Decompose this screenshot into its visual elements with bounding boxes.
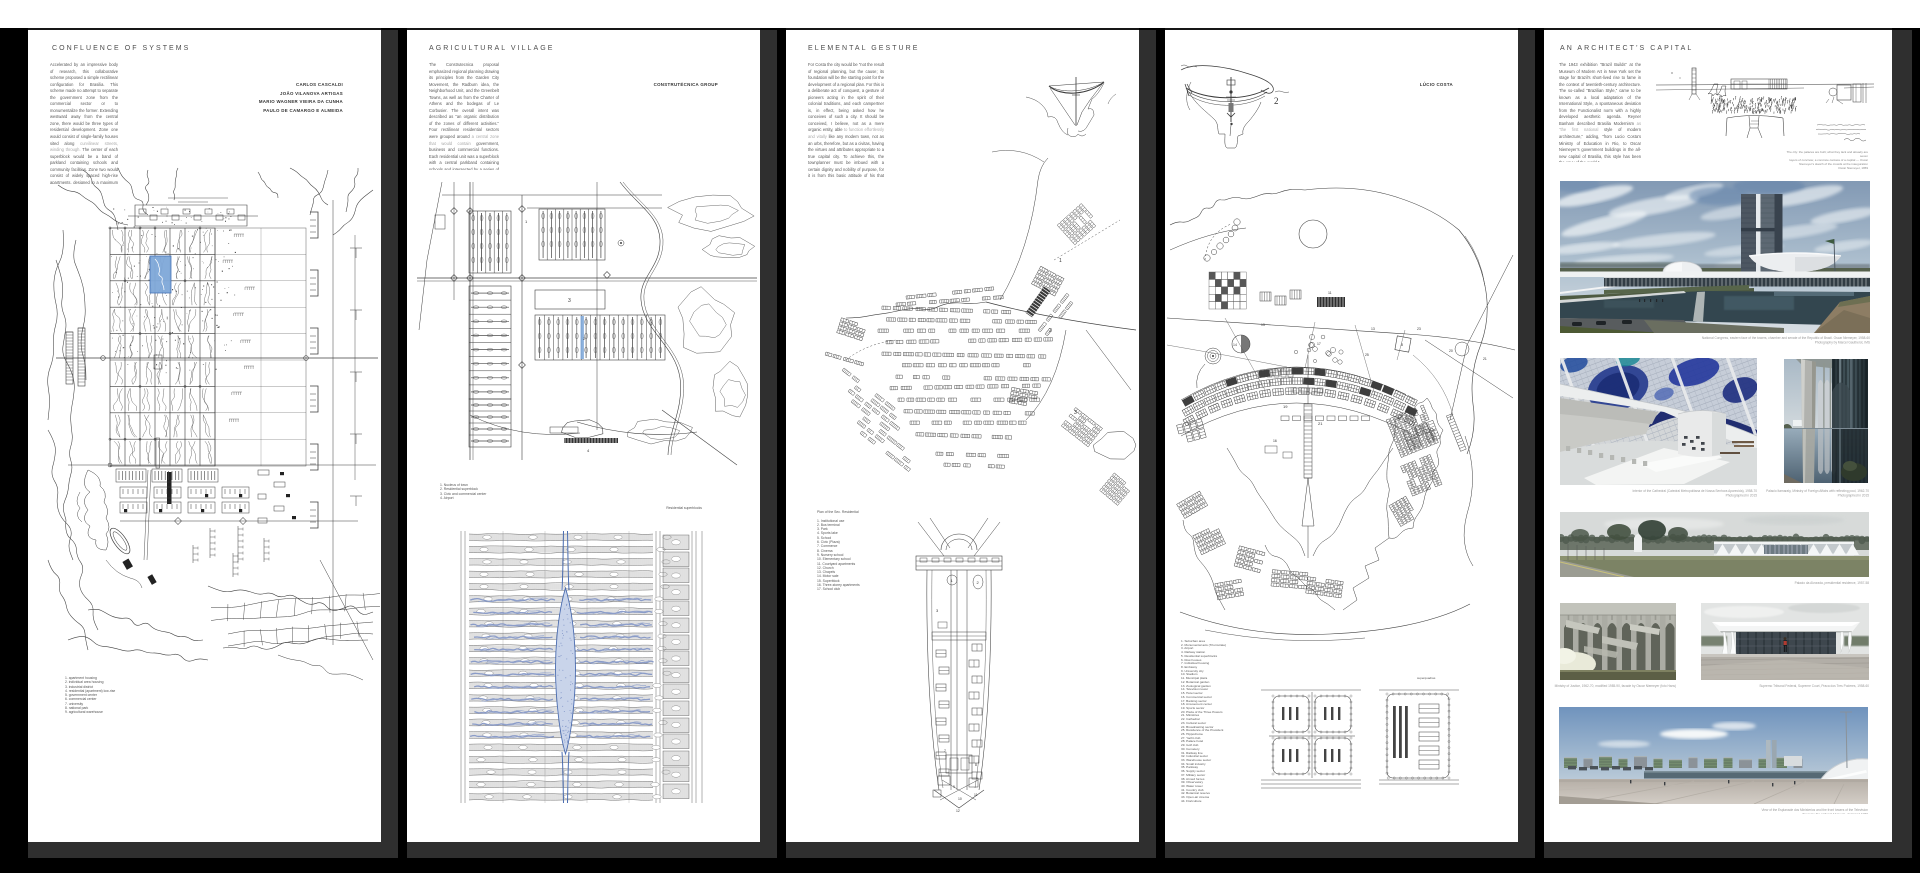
svg-text:7: 7	[944, 749, 946, 753]
svg-text:9: 9	[953, 785, 955, 789]
svg-text:2: 2	[977, 580, 980, 585]
svg-text:11: 11	[974, 793, 978, 797]
svg-text:Photography by Marcel Gauthero: Photography by Marcel Gautherot, IMS	[1815, 340, 1870, 344]
svg-text:Ministry of Justice, 1962-70,: Ministry of Justice, 1962-70, modified 1…	[1555, 684, 1676, 688]
svg-text:Supremo Tribunal Federal, Supr: Supremo Tribunal Federal, Supreme Court,…	[1759, 684, 1869, 688]
svg-text:Interior of the Cathedral (Cat: Interior of the Cathedral (Catedral Metr…	[1632, 489, 1757, 493]
svg-text:1: 1	[1059, 258, 1062, 264]
svg-text:Photographed in 2015: Photographed in 2015	[1838, 493, 1870, 497]
svg-text:10: 10	[958, 797, 962, 801]
svg-text:Palacio Itamaraty, Ministry of: Palacio Itamaraty, Ministry of Foreign A…	[1766, 489, 1869, 493]
svg-text:National Congress, eastern fac: National Congress, eastern face of the t…	[1702, 336, 1870, 340]
svg-text:8: 8	[975, 763, 977, 767]
svg-text:12: 12	[956, 809, 960, 813]
svg-text:Palacio da Alvorada, president: Palacio da Alvorada, presidential reside…	[1795, 581, 1870, 585]
svg-text:3: 3	[1074, 410, 1077, 416]
svg-text:View of the Esplanade dos Mini: View of the Esplanade dos Ministerios an…	[1761, 808, 1868, 812]
svg-text:Photographed in 2015: Photographed in 2015	[1726, 493, 1758, 497]
svg-text:2: 2	[1049, 328, 1052, 334]
svg-text:Tower by the national Museum,: Tower by the national Museum, designed 1…	[1802, 812, 1868, 814]
svg-text:3: 3	[936, 608, 939, 613]
